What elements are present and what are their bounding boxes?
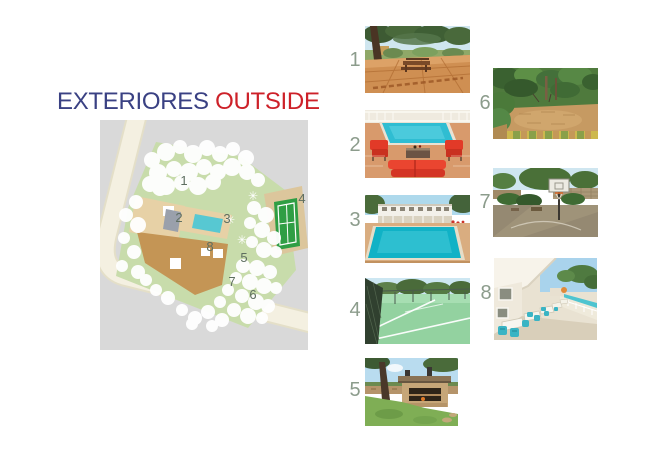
photo-number-8: 8 (477, 281, 495, 305)
double-sun-lounger (388, 160, 446, 177)
photo-number-3: 3 (346, 208, 364, 232)
photo-2-pool-loungers (365, 110, 470, 178)
svg-text:✳: ✳ (237, 233, 247, 247)
photo-3-pool-house (365, 195, 470, 263)
map-marker-2: 2 (175, 210, 182, 225)
svg-text:✳: ✳ (248, 189, 258, 203)
parasol (561, 287, 567, 293)
photo-number-5: 5 (346, 378, 364, 402)
photo-7-basketball (493, 168, 598, 237)
map-marker-8: 8 (206, 239, 213, 254)
photo-number-2: 2 (346, 133, 364, 157)
photo-1-patio (365, 26, 470, 93)
title-outside: OUTSIDE (215, 88, 320, 115)
photo-number-7: 7 (476, 190, 494, 214)
listing-collage: EXTERIORES OUTSIDE (0, 0, 650, 450)
map-marker-6: 6 (249, 287, 256, 302)
tile-strip (507, 131, 598, 139)
photo-8-terrace (494, 258, 597, 340)
bench (531, 207, 542, 211)
photo-number-4: 4 (346, 298, 364, 322)
photo-number-1: 1 (346, 48, 364, 72)
photo-5-barbecue (365, 358, 458, 426)
map-marker-3: 3 (223, 211, 230, 226)
site-plan-map: ✳✳✳ 1 2 3 4 5 6 7 8 (100, 120, 308, 350)
map-marker-5: 5 (240, 250, 247, 265)
photo-6-garden (493, 68, 598, 139)
map-marker-7: 7 (228, 274, 235, 289)
title-exteriores: EXTERIORES (57, 88, 209, 115)
photo-number-6: 6 (476, 91, 494, 115)
window (499, 288, 512, 300)
photo-4-tennis-court (365, 278, 470, 344)
map-marker-4: 4 (298, 191, 305, 206)
window (497, 308, 508, 318)
map-marker-1: 1 (180, 173, 187, 188)
page-title: EXTERIORES OUTSIDE (57, 88, 320, 116)
